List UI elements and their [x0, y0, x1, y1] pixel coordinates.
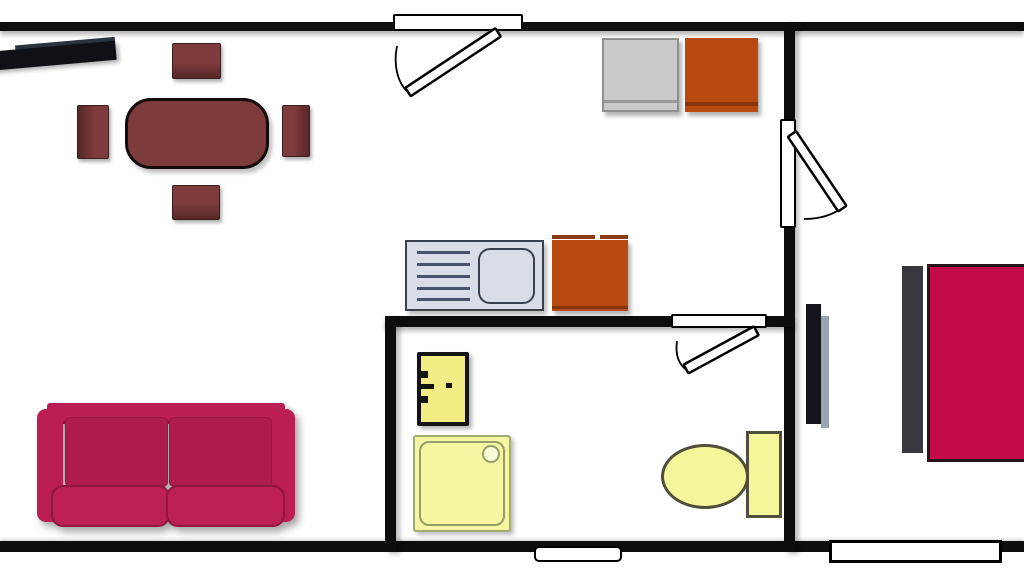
- entry-door-leaf: [405, 28, 501, 96]
- door-swing-layer: [0, 0, 1024, 576]
- floor-plan: [0, 0, 1024, 576]
- bathroom-door-leaf: [684, 326, 759, 373]
- bedroom-door-leaf: [788, 131, 847, 211]
